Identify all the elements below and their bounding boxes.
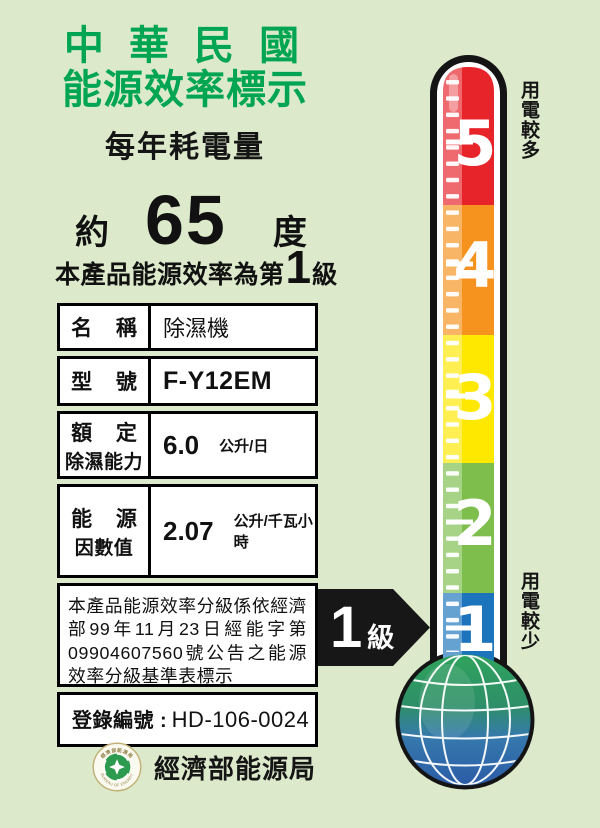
grade-number: 1: [286, 240, 312, 294]
row-capacity-value: 6.0: [163, 430, 199, 461]
row-capacity-label-line1: 額 定: [71, 417, 146, 447]
annual-consumption-heading: 每年耗電量: [25, 122, 345, 166]
header: 中 華 民 國 能源效率標示 每年耗電量: [25, 24, 345, 166]
row-ef-value: 2.07: [163, 516, 214, 547]
row-ef-unit: 公升/千瓦小時: [234, 510, 315, 552]
row-model-label: 型 號: [71, 366, 146, 396]
row-ef-label-cell: 能 源 因數值: [60, 487, 151, 575]
registration-label: 登錄編號 :: [72, 710, 167, 732]
row-ef-value-cell: 2.07 公升/千瓦小時: [151, 487, 315, 575]
uses-more-power-label: 用電較多: [515, 80, 542, 160]
globe-highlight: [419, 664, 475, 740]
agency-name: 經濟部能源局: [154, 749, 316, 786]
row-capacity-label-cell: 額 定 除濕能力: [60, 414, 151, 476]
table-row-energy-factor: 能 源 因數值 2.07 公升/千瓦小時: [57, 484, 318, 578]
row-name-label: 名 稱: [71, 312, 146, 342]
row-ef-label-line1: 能 源: [71, 503, 146, 533]
row-capacity-value-cell: 6.0 公升/日: [151, 414, 315, 476]
row-capacity-label-line2: 除濕能力: [65, 447, 143, 474]
grade-sentence-before: 本產品能源效率為第: [55, 255, 285, 291]
row-model-value-cell: F-Y12EM: [151, 359, 315, 403]
grade-sentence-after: 級: [312, 255, 338, 291]
grade-5-number: 5: [453, 107, 496, 180]
grade-4-number: 4: [453, 229, 496, 302]
table-row-capacity: 額 定 除濕能力 6.0 公升/日: [57, 411, 318, 479]
regulation-note-text: 本產品能源效率分級係依經濟部99年11月23日經能字第09904607560號公…: [68, 595, 307, 689]
grade-3-number: 3: [453, 361, 496, 434]
row-model-value: F-Y12EM: [163, 367, 272, 396]
grade-arrow-number: 1: [330, 589, 362, 666]
row-model-label-cell: 型 號: [60, 359, 151, 403]
grade-2-number: 2: [453, 487, 496, 560]
title-line2: 能源效率標示: [25, 68, 345, 113]
grade-sentence: 本產品能源效率為第 1 級: [55, 240, 338, 294]
row-name-value: 除濕機: [163, 311, 229, 343]
spec-table: 名 稱 除濕機 型 號 F-Y12EM 額 定 除濕能力 6.0 公升/日 能 …: [57, 303, 318, 747]
title-line1: 中 華 民 國: [25, 24, 345, 68]
footer: 經濟部能源局 BUREAU OF ENERGY 經濟部能源局: [92, 742, 316, 792]
table-row-model: 型 號 F-Y12EM: [57, 356, 318, 406]
uses-less-power-label: 用電較少: [515, 571, 542, 651]
energy-label: 中 華 民 國 能源效率標示 每年耗電量 約 65 度 本產品能源效率為第 1 …: [0, 0, 600, 828]
row-name-value-cell: 除濕機: [151, 306, 315, 348]
bureau-of-energy-logo: 經濟部能源局 BUREAU OF ENERGY: [92, 742, 142, 792]
table-row-name: 名 稱 除濕機: [57, 303, 318, 351]
row-name-label-cell: 名 稱: [60, 306, 151, 348]
registration-number: HD-106-0024: [172, 707, 310, 732]
regulation-note: 本產品能源效率分級係依經濟部99年11月23日經能字第09904607560號公…: [57, 583, 318, 687]
row-capacity-unit: 公升/日: [219, 435, 268, 456]
row-ef-label-line2: 因數值: [75, 533, 134, 560]
registration-row: 登錄編號 : HD-106-0024: [57, 692, 318, 747]
